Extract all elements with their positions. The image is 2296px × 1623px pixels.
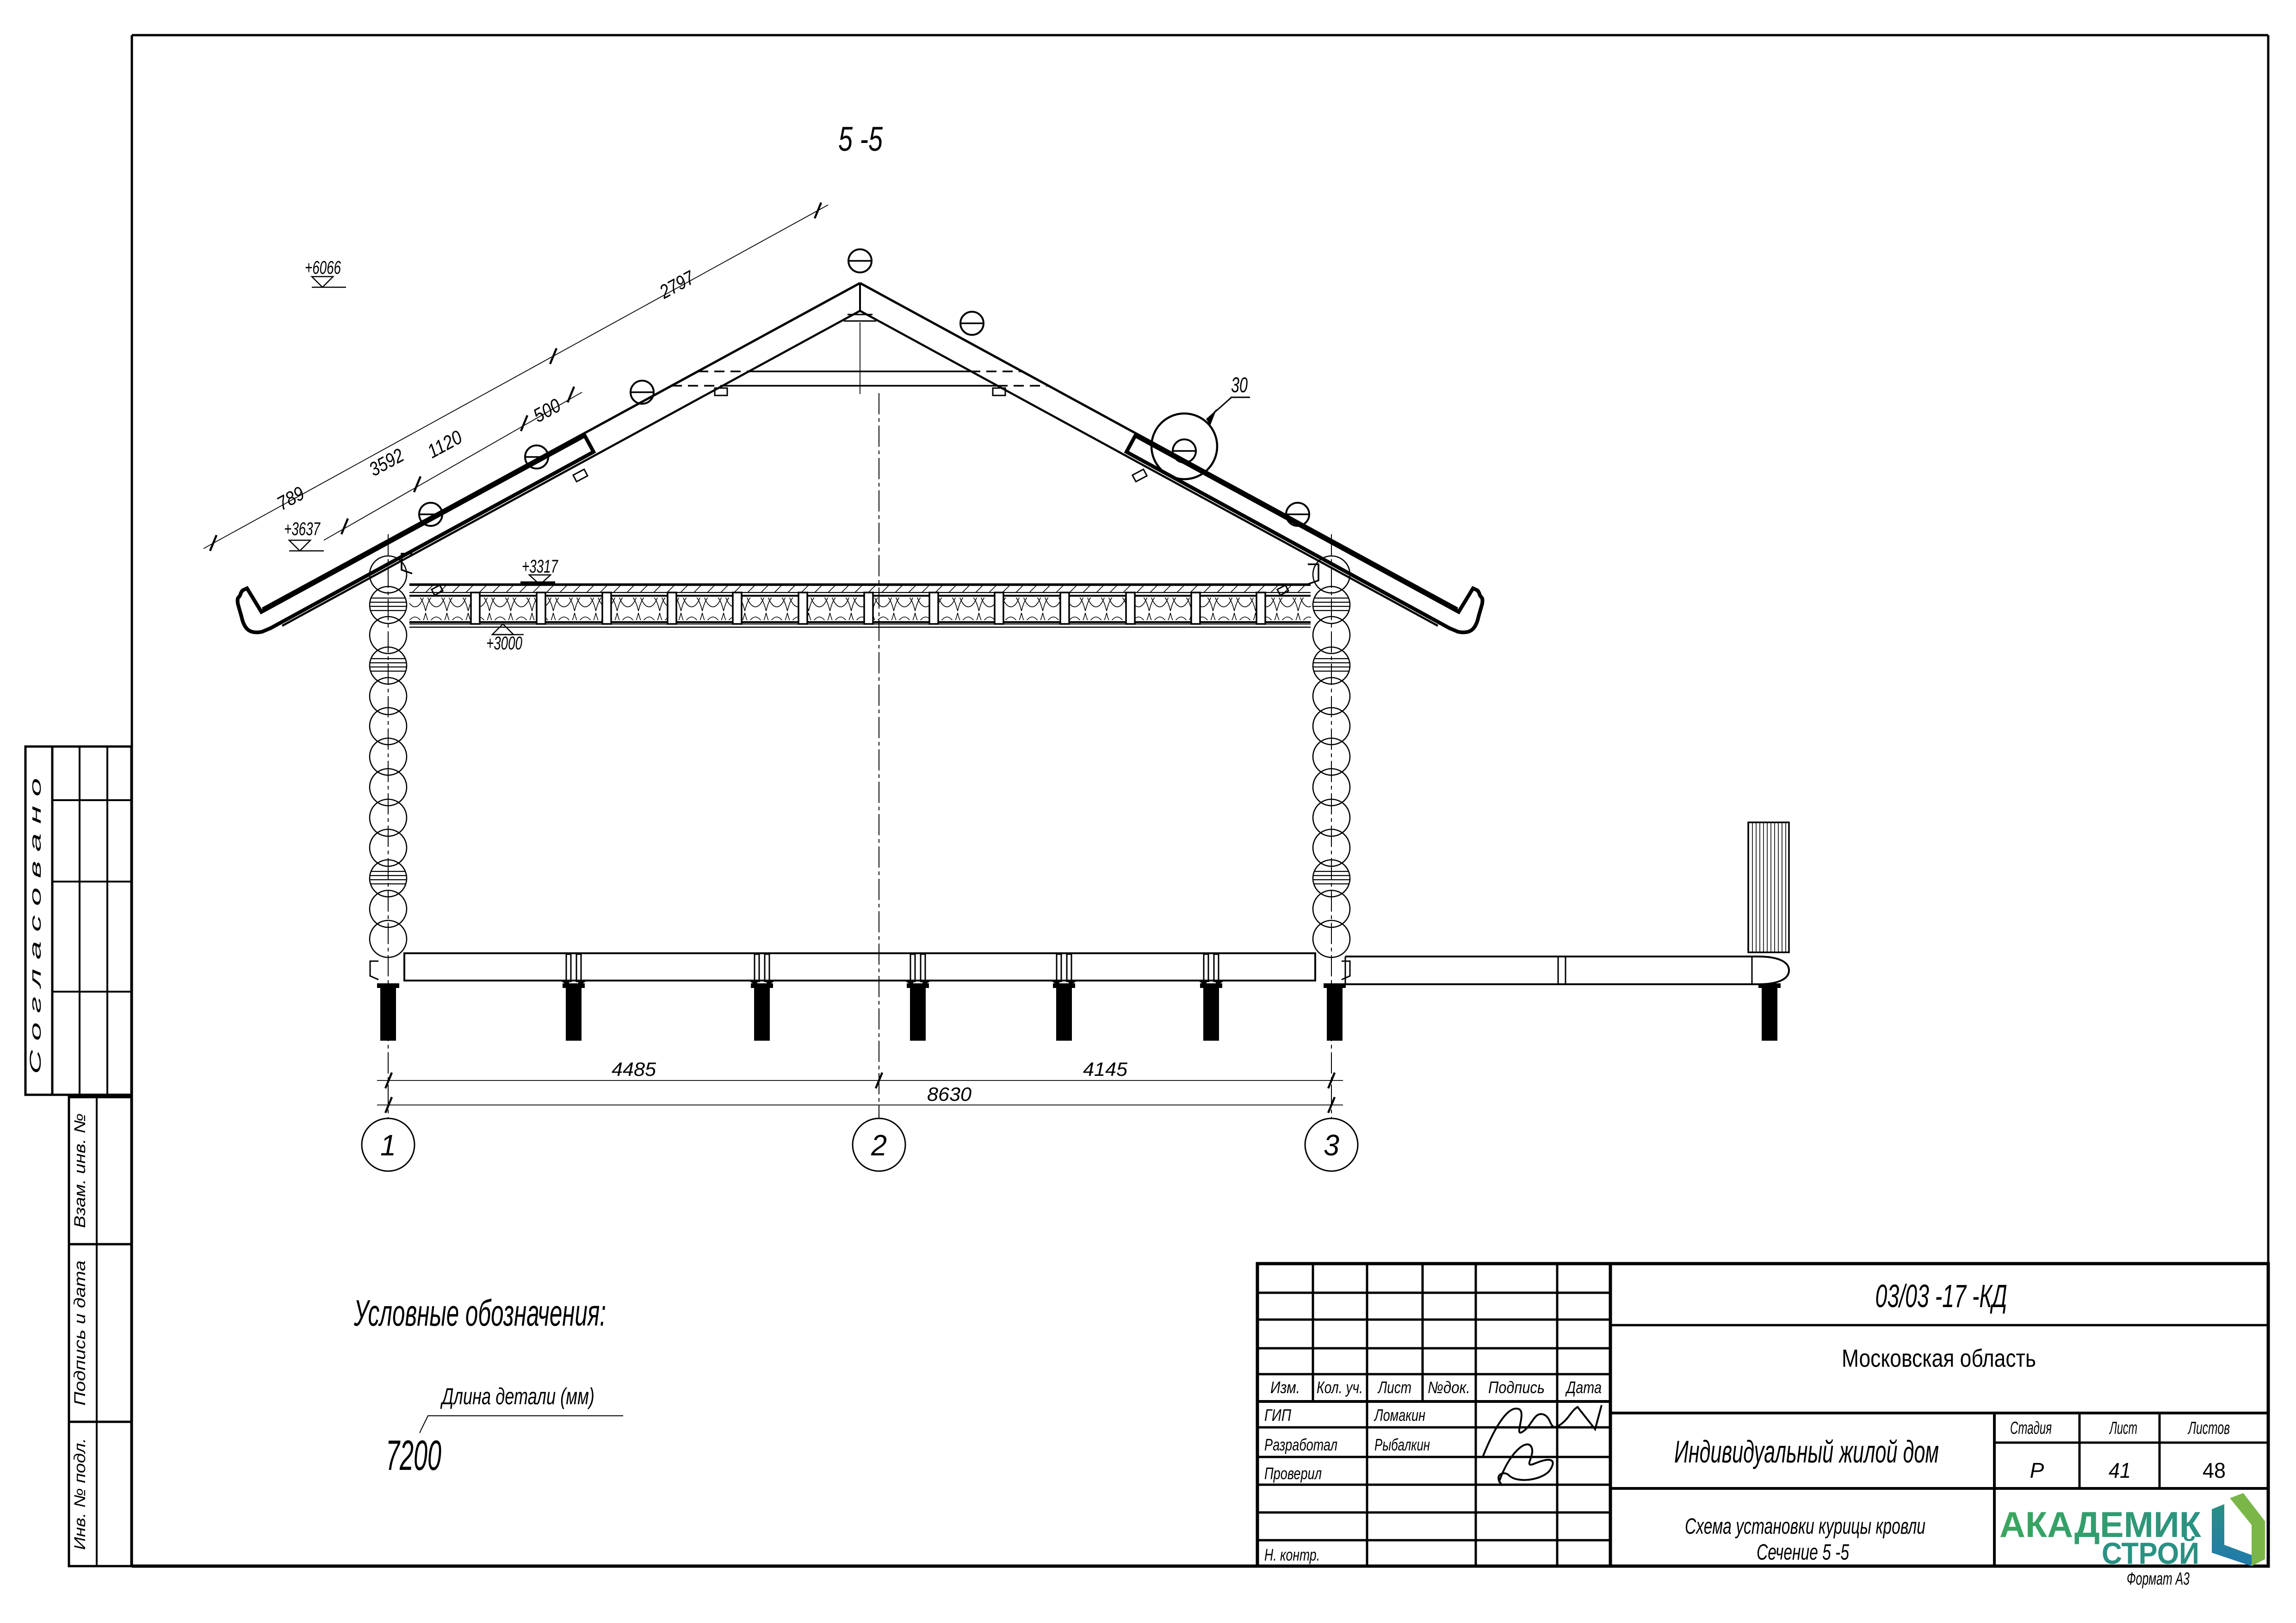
svg-text:Схема установки курицы кровли: Схема установки курицы кровли bbox=[1685, 1514, 1925, 1539]
svg-text:Сечение 5 -5: Сечение 5 -5 bbox=[1757, 1540, 1849, 1565]
svg-text:03/03 -17 -КД: 03/03 -17 -КД bbox=[1875, 1278, 2007, 1314]
svg-text:48: 48 bbox=[2203, 1458, 2226, 1482]
svg-text:Формат А3: Формат А3 bbox=[2127, 1569, 2190, 1589]
svg-text:Листов: Листов bbox=[2187, 1419, 2230, 1438]
svg-text:8630: 8630 bbox=[927, 1083, 972, 1105]
svg-text:Инв. № подл.: Инв. № подл. bbox=[71, 1438, 89, 1550]
svg-text:1: 1 bbox=[380, 1129, 396, 1162]
svg-text:+3317: +3317 bbox=[522, 556, 558, 577]
svg-text:Длина детали (мм): Длина детали (мм) bbox=[440, 1383, 594, 1409]
svg-text:ГИП: ГИП bbox=[1264, 1406, 1292, 1425]
svg-text:Р: Р bbox=[2030, 1458, 2044, 1482]
svg-text:Разработал: Разработал bbox=[1264, 1435, 1337, 1454]
svg-text:Н. контр.: Н. контр. bbox=[1264, 1545, 1320, 1564]
svg-text:Подпись и дата: Подпись и дата bbox=[71, 1260, 89, 1406]
svg-text:Кол. уч.: Кол. уч. bbox=[1317, 1378, 1363, 1397]
svg-text:Московская область: Московская область bbox=[1842, 1345, 2036, 1372]
svg-text:Взам. инв. №: Взам. инв. № bbox=[71, 1113, 89, 1228]
svg-text:Дата: Дата bbox=[1565, 1378, 1602, 1397]
svg-text:СТРОЙ: СТРОЙ bbox=[2102, 1536, 2199, 1570]
svg-text:С о г л а с о в а н о: С о г л а с о в а н о bbox=[27, 778, 44, 1074]
svg-text:30: 30 bbox=[1231, 373, 1248, 397]
svg-text:+3637: +3637 bbox=[284, 519, 321, 539]
svg-text:4485: 4485 bbox=[612, 1058, 656, 1080]
svg-text:3: 3 bbox=[1324, 1129, 1339, 1162]
svg-text:2: 2 bbox=[871, 1129, 887, 1162]
svg-text:+3000: +3000 bbox=[486, 633, 522, 654]
svg-text:Условные обозначения:: Условные обозначения: bbox=[353, 1292, 606, 1333]
svg-text:Индивидуальный жилой дом: Индивидуальный жилой дом bbox=[1674, 1434, 1939, 1469]
svg-text:Лист: Лист bbox=[1377, 1378, 1411, 1397]
svg-text:4145: 4145 bbox=[1083, 1058, 1128, 1080]
svg-text:Подпись: Подпись bbox=[1488, 1378, 1545, 1397]
svg-text:Рыбалкин: Рыбалкин bbox=[1374, 1435, 1430, 1454]
svg-text:№док.: №док. bbox=[1428, 1378, 1470, 1397]
svg-text:7200: 7200 bbox=[386, 1432, 441, 1479]
svg-text:Ломакин: Ломакин bbox=[1374, 1406, 1425, 1425]
svg-text:Стадия: Стадия bbox=[2010, 1419, 2052, 1438]
svg-text:41: 41 bbox=[2109, 1458, 2131, 1482]
svg-text:Изм.: Изм. bbox=[1270, 1378, 1300, 1397]
svg-text:+6066: +6066 bbox=[305, 258, 341, 278]
svg-text:5 -5: 5 -5 bbox=[838, 120, 883, 158]
svg-text:Лист: Лист bbox=[2109, 1419, 2137, 1438]
svg-text:Проверил: Проверил bbox=[1264, 1464, 1322, 1483]
